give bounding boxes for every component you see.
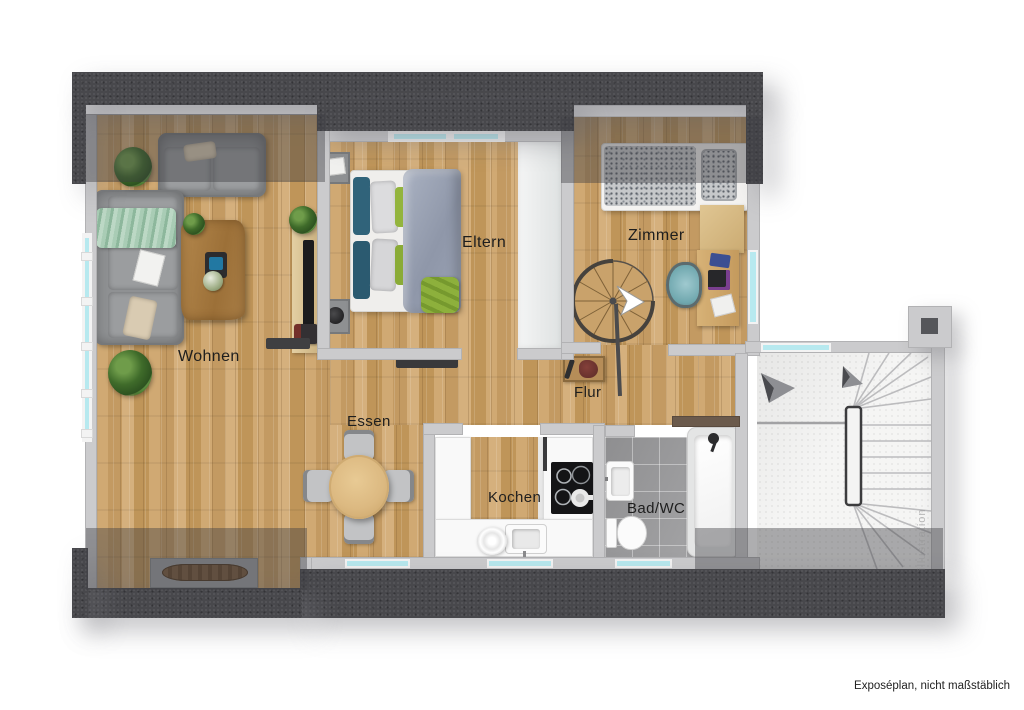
room-label-zimmer: Zimmer: [628, 227, 685, 245]
roof-band-bottom-left: [72, 588, 302, 618]
wall-bath-top-wood: [672, 416, 740, 427]
table-plant: [183, 213, 205, 235]
window-kitchen-bottom: [487, 559, 553, 568]
slope-shading-bottom-left: [86, 528, 307, 590]
roof-band-bottom: [300, 569, 945, 618]
dining-table: [329, 455, 389, 519]
cooktop: [551, 462, 593, 514]
window-child-right: [748, 250, 758, 324]
bolster-pillow: [353, 177, 370, 235]
slope-shading-top-left: [86, 114, 325, 182]
window-parents-2: [452, 132, 500, 141]
double-bed: [350, 170, 460, 312]
bolster-pillow: [353, 241, 370, 299]
green-blanket: [421, 277, 459, 313]
wall-child-bottom-left: [561, 342, 601, 354]
room-label-kochen: Kochen: [488, 489, 541, 506]
room-label-wohnen: Wohnen: [178, 348, 240, 366]
plate-stack: [477, 527, 507, 555]
desk-chair: [666, 262, 702, 308]
desk: [697, 250, 739, 326]
footer-note: Exposéplan, nicht maßstäblich: [854, 680, 1010, 692]
wall-parents-bottom-left: [317, 348, 462, 360]
bedside-unit: [700, 205, 744, 253]
window-dining-bottom: [345, 559, 410, 568]
window-mullion: [82, 343, 92, 350]
watermark: illustration: [916, 440, 928, 570]
window-stairwell: [761, 343, 831, 352]
roof-over-parents: [317, 100, 574, 131]
room-label-eltern: Eltern: [462, 234, 506, 252]
blue-cup: [209, 257, 223, 270]
wall-kitchen-top-left: [423, 423, 463, 435]
window-mullion: [82, 430, 92, 437]
window-mullion: [82, 390, 92, 397]
kitchen-counter-left: [435, 437, 471, 521]
window-left: [83, 236, 91, 439]
window-mullion: [82, 253, 92, 260]
washbasin: [606, 461, 634, 501]
wall-bath-top: [605, 425, 635, 437]
decor-item: [579, 360, 598, 378]
slope-shading-bottom-right: [695, 528, 943, 569]
sofa-three-seater: [94, 190, 184, 345]
room-label-bad-wc: Bad/WC: [627, 500, 685, 517]
window-mullion: [82, 298, 92, 305]
throw-blanket: [96, 208, 176, 248]
paper: [710, 294, 736, 318]
tall-cabinet-edge: [543, 437, 547, 471]
wall-kitchen-bath: [593, 425, 605, 558]
room-label-essen: Essen: [347, 413, 391, 430]
sideboard-plant: [289, 206, 317, 234]
floor-kitchen-wood: [464, 437, 538, 519]
plant-mid-left: [108, 350, 152, 396]
decor-ball-vase: [203, 271, 223, 291]
floor-plan: Wohnen Eltern Zimmer Flur Essen Kochen B…: [0, 0, 1024, 710]
wall-kitchen-left: [423, 425, 435, 558]
monitor: [708, 270, 730, 290]
toilet: [606, 515, 648, 551]
window-bath-bottom: [615, 559, 672, 568]
room-label-flur: Flur: [574, 384, 601, 401]
wall-child-top: [561, 105, 760, 117]
window-parents-1: [392, 132, 448, 141]
wall-shelf: [266, 338, 310, 349]
roof-edge-top-left: [72, 100, 86, 184]
direction-arrow-icon: [761, 366, 863, 403]
laptop: [709, 253, 731, 269]
chimney-flue: [921, 318, 938, 334]
chimney: [908, 306, 952, 348]
wardrobe: [518, 142, 561, 348]
slope-shading-top-right: [561, 117, 762, 183]
television: [303, 240, 314, 330]
kitchen-sink: [505, 524, 547, 554]
umbrella: [564, 359, 575, 380]
